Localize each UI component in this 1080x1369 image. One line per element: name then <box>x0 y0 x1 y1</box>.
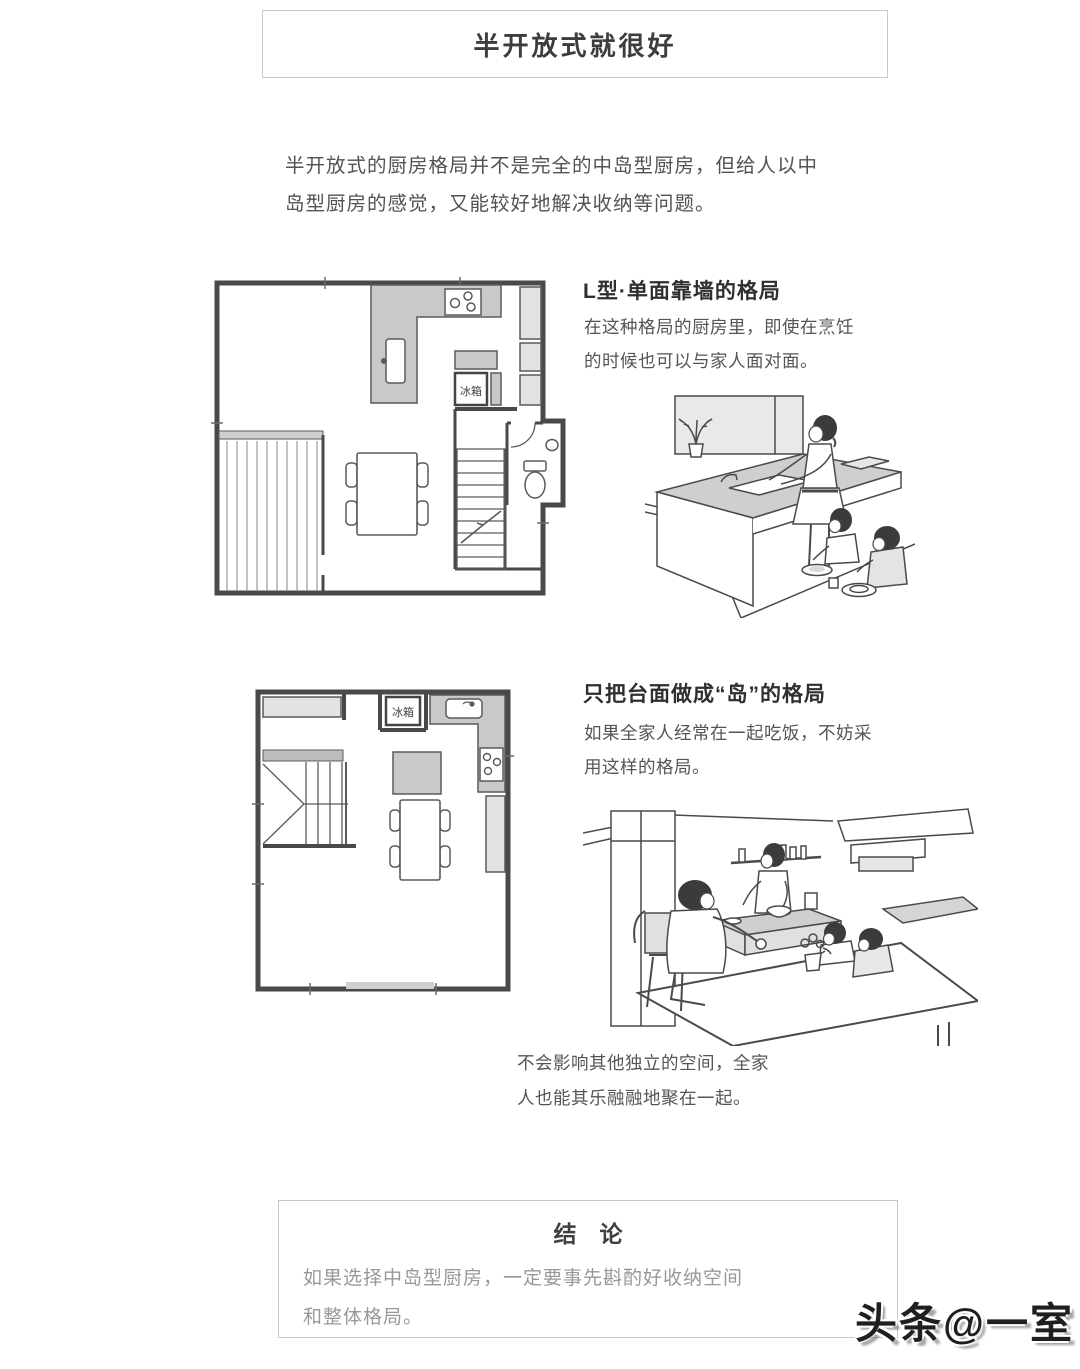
plan2-fridge: 冰箱 <box>380 692 426 730</box>
plan2-dining-table <box>390 800 450 880</box>
section1-body: 在这种格局的厨房里，即使在烹饪 的时候也可以与家人面对面。 <box>584 310 934 378</box>
plan1-cabinets <box>520 287 541 405</box>
plan2-door-threshold <box>346 982 434 989</box>
section2-caption: 不会影响其他独立的空间，全家 人也能其乐融融地聚在一起。 <box>517 1046 887 1116</box>
floor-plan-island: 冰箱 <box>250 684 515 998</box>
title-box: 半开放式就很好 <box>262 10 888 78</box>
watermark-text: 头条@一室 <box>855 1290 1074 1351</box>
conclusion-body: 如果选择中岛型厨房，一定要事先斟酌好收纳空间 和整体格局。 <box>303 1259 873 1337</box>
section2-body-line-2: 用这样的格局。 <box>584 750 944 784</box>
plan1-stove <box>445 289 481 315</box>
plan1-dining-table <box>346 453 428 535</box>
plan2-closet <box>263 697 341 717</box>
illu1-kid-2 <box>857 526 907 588</box>
plan2-island-counter <box>393 752 441 794</box>
section1-heading: L型·单面靠墙的格局 <box>583 275 781 305</box>
plan2-side-counter <box>486 796 505 872</box>
illustration-l-shape-kitchen <box>645 392 915 618</box>
illu1-dishes <box>802 565 876 597</box>
intro-line-2: 岛型厨房的感觉，又能较好地解决收纳等问题。 <box>285 185 895 223</box>
plan2-outer-walls <box>258 692 508 989</box>
plan1-fridge: 冰箱 <box>455 373 501 405</box>
plan2-stove <box>480 748 503 781</box>
plan1-toilet-room <box>511 423 558 498</box>
section1-body-line-1: 在这种格局的厨房里，即使在烹饪 <box>584 310 934 344</box>
section2-body-line-1: 如果全家人经常在一起吃饭，不妨采 <box>584 716 944 750</box>
section1-body-line-2: 的时候也可以与家人面对面。 <box>584 344 934 378</box>
illu2-soffit <box>838 809 973 841</box>
plan2-closet-band <box>263 750 343 761</box>
plan2-fridge-label: 冰箱 <box>392 705 414 719</box>
plan1-counter-return <box>455 351 497 369</box>
plan1-striped-room <box>219 431 323 591</box>
caption-line-2: 人也能其乐融融地聚在一起。 <box>517 1081 887 1116</box>
illu2-range-hood <box>851 839 925 871</box>
caption-line-1: 不会影响其他独立的空间，全家 <box>517 1046 887 1081</box>
intro-paragraph: 半开放式的厨房格局并不是完全的中岛型厨房，但给人以中 岛型厨房的感觉，又能较好地… <box>285 147 895 223</box>
page-title: 半开放式就很好 <box>473 26 676 63</box>
conclusion-title: 结 论 <box>279 1215 897 1249</box>
plan1-fridge-label: 冰箱 <box>460 384 482 398</box>
illustration-island-kitchen <box>583 793 978 1046</box>
illu2-back-counter <box>883 897 978 923</box>
section2-heading: 只把台面做成“岛”的格局 <box>583 678 826 708</box>
plan2-stairs <box>263 762 356 846</box>
plan1-stairs <box>457 449 505 569</box>
section2-body: 如果全家人经常在一起吃饭，不妨采 用这样的格局。 <box>584 716 944 784</box>
intro-line-1: 半开放式的厨房格局并不是完全的中岛型厨房，但给人以中 <box>285 147 895 185</box>
conclusion-line-2: 和整体格局。 <box>303 1298 873 1337</box>
illu2-kid-2 <box>853 928 893 977</box>
conclusion-line-1: 如果选择中岛型厨房，一定要事先斟酌好收纳空间 <box>303 1259 873 1298</box>
illu2-woman <box>743 843 791 913</box>
book-page: 半开放式就很好 半开放式的厨房格局并不是完全的中岛型厨房，但给人以中 岛型厨房的… <box>0 0 1080 1369</box>
conclusion-box: 结 论 如果选择中岛型厨房，一定要事先斟酌好收纳空间 和整体格局。 <box>278 1200 898 1338</box>
plan2-sink <box>446 699 482 718</box>
floor-plan-l-shape: 冰箱 <box>205 273 570 605</box>
